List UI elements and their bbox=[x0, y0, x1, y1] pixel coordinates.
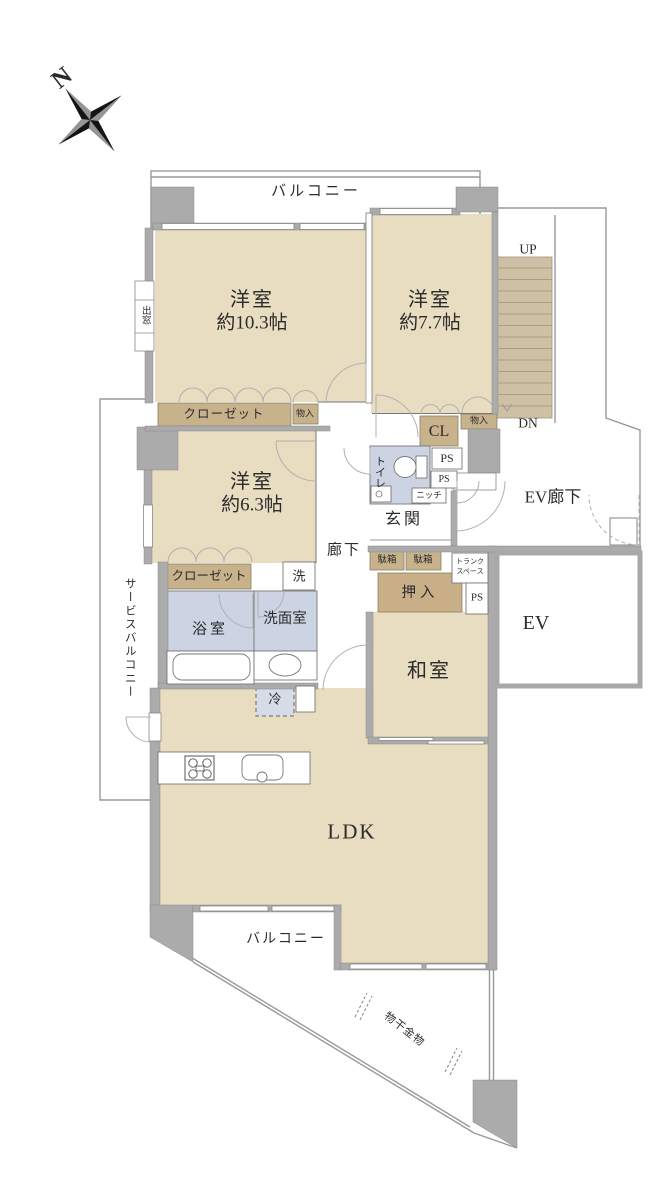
label-bay-window: 出窓 bbox=[139, 306, 149, 325]
label-washroom: 洗面室 bbox=[263, 612, 307, 627]
label-ps-2: PS bbox=[438, 475, 449, 485]
balcony-corner-pillar bbox=[473, 1080, 517, 1148]
label-monoire-top: 物入 bbox=[296, 410, 314, 419]
label-room1-name: 洋室 bbox=[230, 290, 274, 310]
label-ps-1: PS bbox=[440, 452, 453, 464]
label-balcony-bottom: バルコニー bbox=[246, 933, 326, 947]
floor-plan-drawing bbox=[0, 0, 672, 1200]
label-stairs-dn: DN bbox=[518, 416, 538, 430]
label-ps-ev: PS bbox=[471, 593, 483, 604]
label-refrigerator: 冷 bbox=[268, 693, 281, 706]
label-trunk-1: トランク bbox=[456, 559, 484, 566]
compass-icon bbox=[34, 64, 146, 176]
label-entrance: 玄関 bbox=[385, 512, 423, 528]
label-room3-size: 約6.3帖 bbox=[221, 496, 283, 515]
label-niche: ニッチ bbox=[416, 491, 442, 500]
label-closet-bottom: クローゼット bbox=[171, 570, 246, 583]
bathtub-icon bbox=[173, 654, 250, 680]
label-hallway: 廊下 bbox=[327, 544, 361, 559]
label-toilet: トイレ bbox=[374, 456, 385, 489]
label-bathroom: 浴室 bbox=[192, 623, 228, 638]
label-monoire-right: 物入 bbox=[470, 417, 488, 426]
label-japanese-room: 和室 bbox=[407, 661, 451, 681]
balcony-diagonal-rail bbox=[193, 962, 517, 1148]
label-ldk: LDK bbox=[327, 822, 376, 843]
label-ev-hall: EV廊下 bbox=[525, 489, 582, 506]
label-cl: CL bbox=[429, 424, 449, 440]
label-ev: EV bbox=[523, 613, 550, 633]
room-divider-wall bbox=[366, 213, 372, 403]
label-oshiire: 押入 bbox=[402, 586, 439, 601]
label-room1-size: 約10.3帖 bbox=[216, 314, 287, 333]
label-room2-size: 約7.7帖 bbox=[399, 314, 461, 333]
label-stairs-up: UP bbox=[519, 242, 536, 256]
elevator-shaft bbox=[497, 553, 640, 686]
label-balcony-top: バルコニー bbox=[271, 185, 361, 200]
vanity-sink-icon bbox=[269, 654, 301, 676]
label-washing-machine: 洗 bbox=[292, 570, 305, 583]
label-service-balcony: サービスバルコニー bbox=[123, 577, 135, 699]
label-shoe-box-2: 駄箱 bbox=[413, 556, 432, 566]
label-shoe-box-1: 駄箱 bbox=[377, 556, 396, 566]
label-closet-top: クローゼット bbox=[183, 408, 264, 421]
kitchen-counter bbox=[158, 752, 310, 784]
floor-plan: N バルコニー 洋室 約10.3帖 洋室 約7.7帖 UP DN クローゼット … bbox=[0, 0, 672, 1200]
entrance-door-frame bbox=[453, 473, 496, 490]
label-room2-name: 洋室 bbox=[408, 290, 452, 310]
label-room3-name: 洋室 bbox=[230, 472, 274, 492]
label-trunk-2: スペース bbox=[456, 569, 483, 576]
